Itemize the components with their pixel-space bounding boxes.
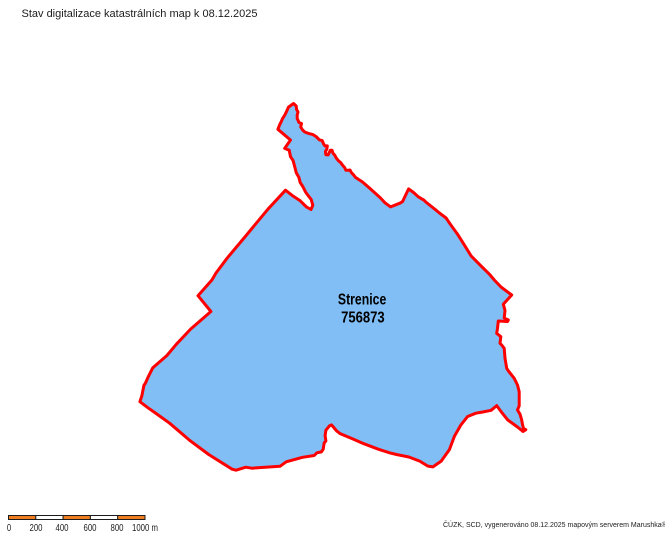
svg-text:Strenice: Strenice <box>338 292 386 309</box>
svg-text:756873: 756873 <box>341 309 385 326</box>
